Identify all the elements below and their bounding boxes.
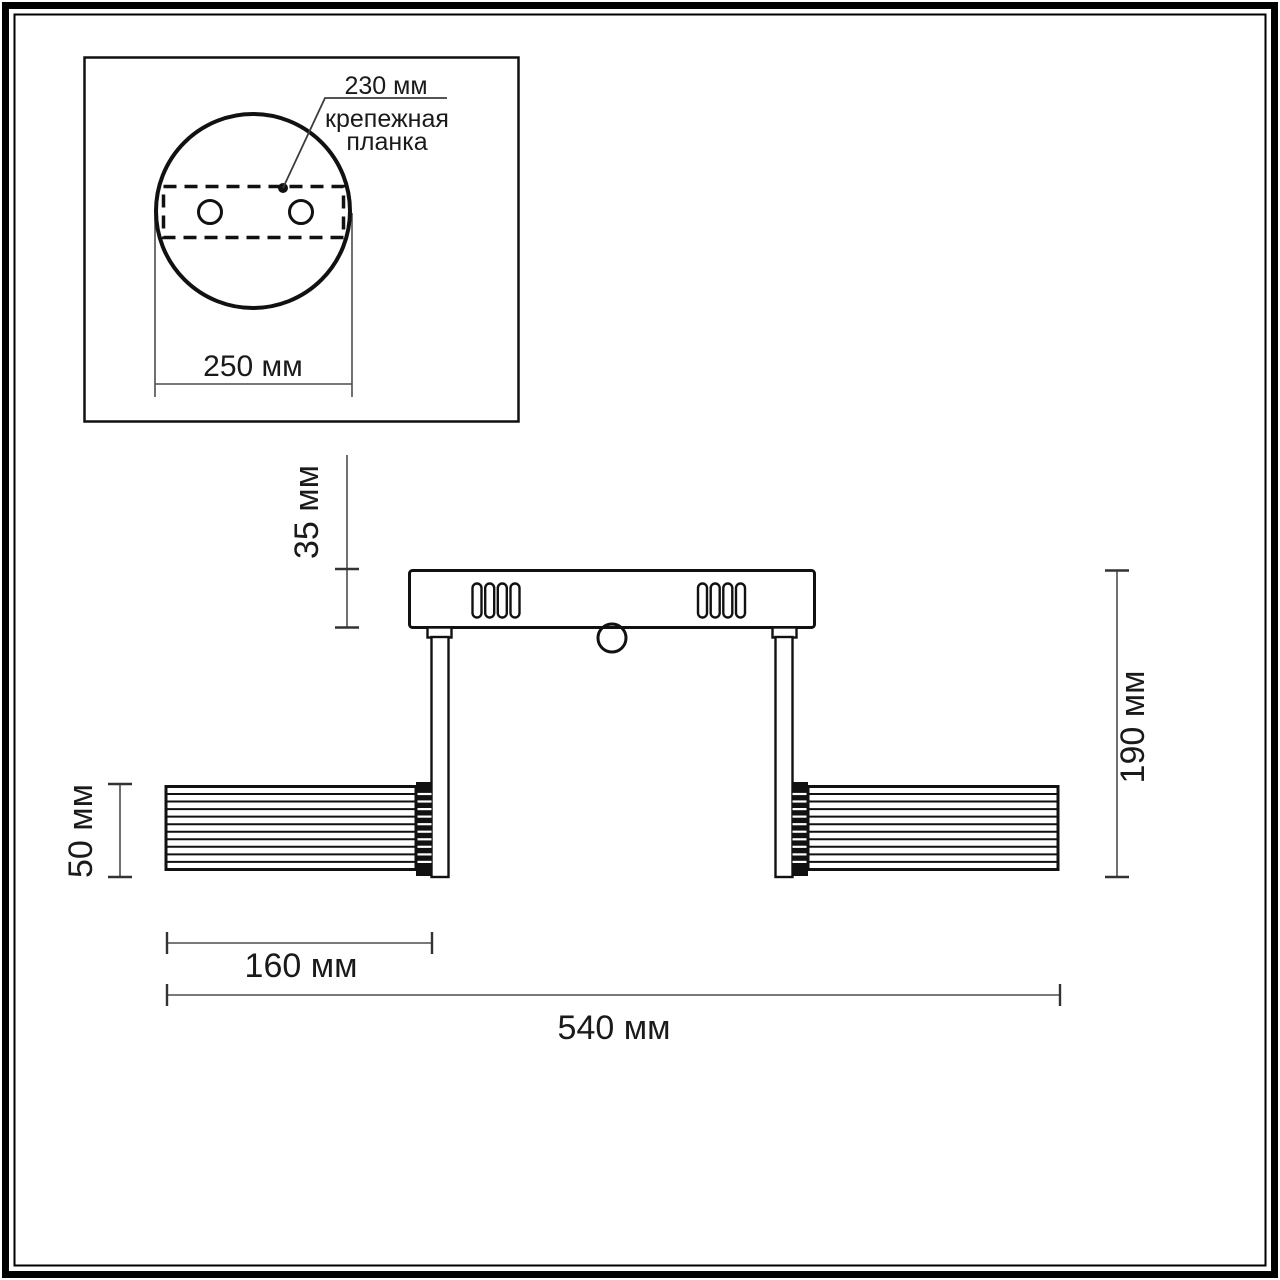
mounting-bar-label-line2: планка xyxy=(346,128,427,156)
canopy-height-label: 35 мм xyxy=(288,465,326,559)
shade-left xyxy=(166,787,416,870)
hole-spacing-label: 230 мм xyxy=(344,72,427,100)
vent-slot xyxy=(498,584,507,618)
rod-right xyxy=(776,637,793,877)
vent-slot xyxy=(511,584,520,618)
mounting-plate-inset: 230 мм крепежная планка 250 мм xyxy=(85,58,519,422)
shade-connector-left xyxy=(416,782,432,876)
vent-slot xyxy=(711,584,720,618)
fixture-front-view xyxy=(166,571,1058,878)
vent-slot xyxy=(736,584,745,618)
drawing-canvas: 230 мм крепежная планка 250 мм xyxy=(0,0,1280,1280)
canopy-body xyxy=(410,571,815,628)
mounting-hole-right xyxy=(290,201,313,224)
fixture-height-label: 190 мм xyxy=(1114,671,1152,784)
dimension-fixture-width: 540 мм xyxy=(167,984,1060,1047)
dimension-shade-diameter: 50 мм xyxy=(62,784,132,878)
shade-connector-right xyxy=(793,782,809,876)
dimension-fixture-height: 190 мм xyxy=(1105,571,1152,878)
shade-right xyxy=(808,787,1058,870)
vent-slot xyxy=(723,584,732,618)
vent-slot xyxy=(485,584,494,618)
mounting-plate-circle xyxy=(156,114,350,308)
rod-left xyxy=(432,637,449,877)
plate-width-label: 250 мм xyxy=(203,350,303,383)
technical-drawing-page: 230 мм крепежная планка 250 мм xyxy=(0,0,1280,1280)
shade-diameter-label: 50 мм xyxy=(62,784,100,878)
mounting-hole-left xyxy=(199,201,222,224)
fixture-width-label: 540 мм xyxy=(558,1009,671,1047)
dimension-shade-length: 160 мм xyxy=(167,932,432,985)
shade-length-label: 160 мм xyxy=(245,947,358,985)
vent-slot xyxy=(698,584,707,618)
vent-slot xyxy=(473,584,482,618)
dimension-canopy-height: 35 мм xyxy=(288,455,359,628)
